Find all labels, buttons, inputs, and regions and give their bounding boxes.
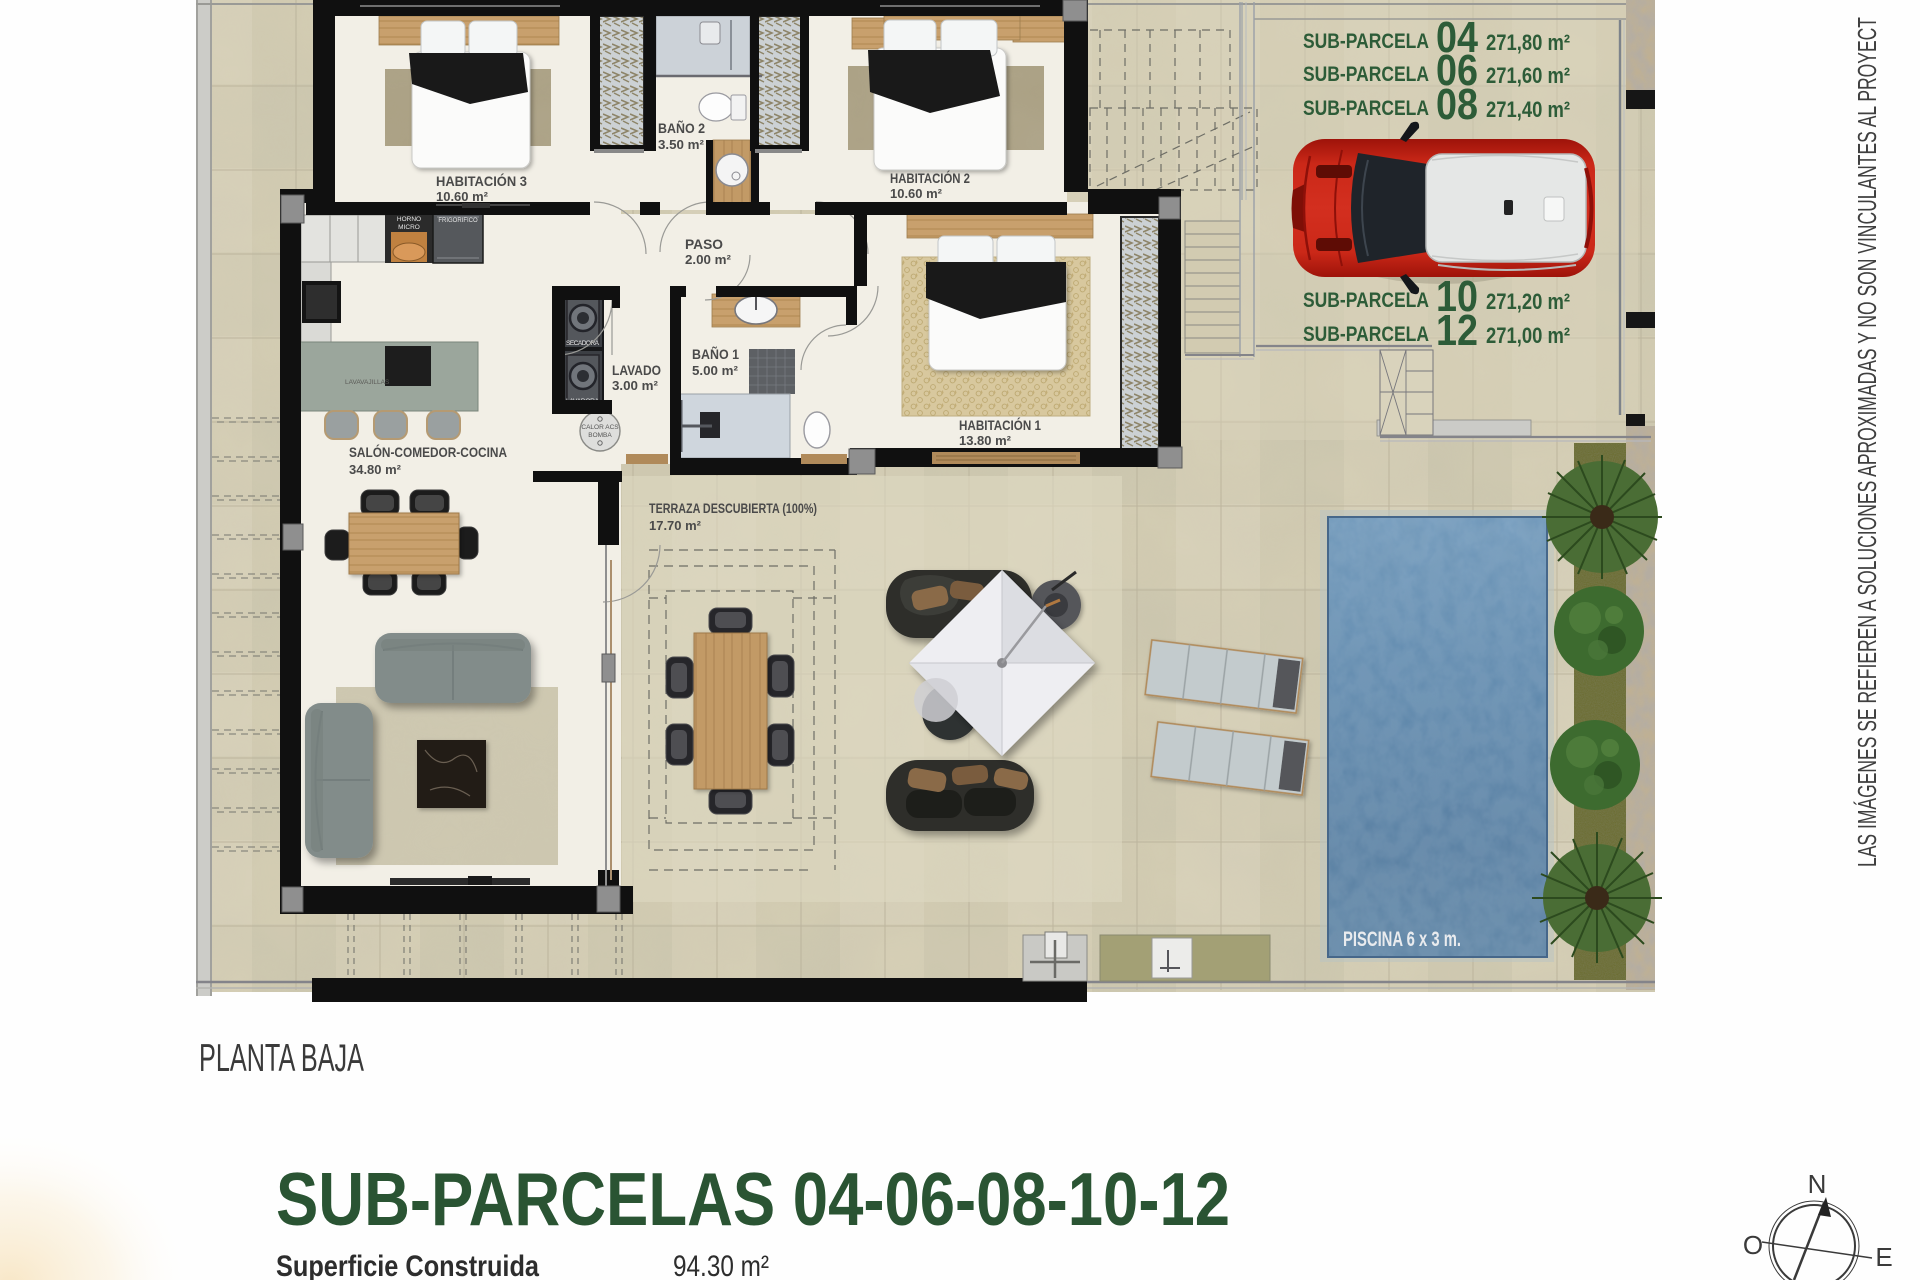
svg-text:3.50 m²: 3.50 m² [658,137,705,152]
svg-text:HABITACIÓN 3: HABITACIÓN 3 [436,172,527,189]
svg-text:12: 12 [1436,306,1478,355]
svg-text:3.00 m²: 3.00 m² [612,378,659,393]
svg-text:MICRO: MICRO [398,224,420,231]
svg-text:HORNO: HORNO [397,216,421,223]
svg-text:SUB-PARCELA: SUB-PARCELA [1303,323,1429,346]
svg-text:SALÓN-COMEDOR-COCINA: SALÓN-COMEDOR-COCINA [349,443,507,460]
svg-text:E: E [1875,1242,1892,1272]
svg-text:10.60 m²: 10.60 m² [890,186,943,201]
svg-text:SUB-PARCELA: SUB-PARCELA [1303,97,1429,120]
svg-text:Superficie Construida: Superficie Construida [276,1250,539,1280]
svg-text:SECADORA: SECADORA [566,340,600,347]
svg-text:O: O [1743,1230,1763,1260]
svg-text:HABITACIÓN 1: HABITACIÓN 1 [959,416,1041,433]
svg-text:5.00 m²: 5.00 m² [692,363,739,378]
svg-text:PISCINA 6 x 3 m.: PISCINA 6 x 3 m. [1343,928,1461,951]
svg-text:SUB-PARCELA: SUB-PARCELA [1303,63,1429,86]
svg-text:17.70 m²: 17.70 m² [649,518,702,533]
svg-text:BAÑO 2: BAÑO 2 [658,119,705,136]
svg-text:08: 08 [1436,80,1478,129]
svg-text:13.80 m²: 13.80 m² [959,433,1012,448]
svg-text:SUB-PARCELAS 04-06-08-10-12: SUB-PARCELAS 04-06-08-10-12 [276,1157,1230,1241]
svg-text:CALOR ACS: CALOR ACS [581,424,619,431]
svg-text:271,20 m²: 271,20 m² [1486,289,1570,314]
svg-text:N: N [1808,1169,1827,1199]
svg-text:271,60 m²: 271,60 m² [1486,63,1570,88]
svg-text:10.60 m²: 10.60 m² [436,189,489,204]
svg-text:FRIGORIFICO: FRIGORIFICO [438,218,478,224]
svg-text:271,40 m²: 271,40 m² [1486,97,1570,122]
svg-text:SUB-PARCELA: SUB-PARCELA [1303,30,1429,53]
svg-text:PASO: PASO [685,236,723,252]
svg-text:HABITACIÓN 2: HABITACIÓN 2 [890,169,970,186]
svg-text:LAVAVAJILLAS: LAVAVAJILLAS [345,379,390,386]
svg-text:PLANTA BAJA: PLANTA BAJA [199,1037,364,1080]
svg-text:271,00 m²: 271,00 m² [1486,323,1570,348]
svg-text:SUB-PARCELA: SUB-PARCELA [1303,289,1429,312]
svg-text:BAÑO 1: BAÑO 1 [692,345,739,362]
svg-text:LAS IMÁGENES SE REFIEREN A SOL: LAS IMÁGENES SE REFIEREN A SOLUCIONES AP… [1852,17,1882,867]
svg-text:TERRAZA DESCUBIERTA (100%): TERRAZA DESCUBIERTA (100%) [649,501,817,516]
svg-text:94.30 m²: 94.30 m² [673,1250,769,1280]
svg-text:271,80 m²: 271,80 m² [1486,30,1570,55]
svg-text:LAVADO: LAVADO [612,362,661,378]
svg-text:34.80 m²: 34.80 m² [349,462,402,477]
svg-text:BOMBA: BOMBA [588,432,612,439]
svg-text:2.00 m²: 2.00 m² [685,252,732,267]
